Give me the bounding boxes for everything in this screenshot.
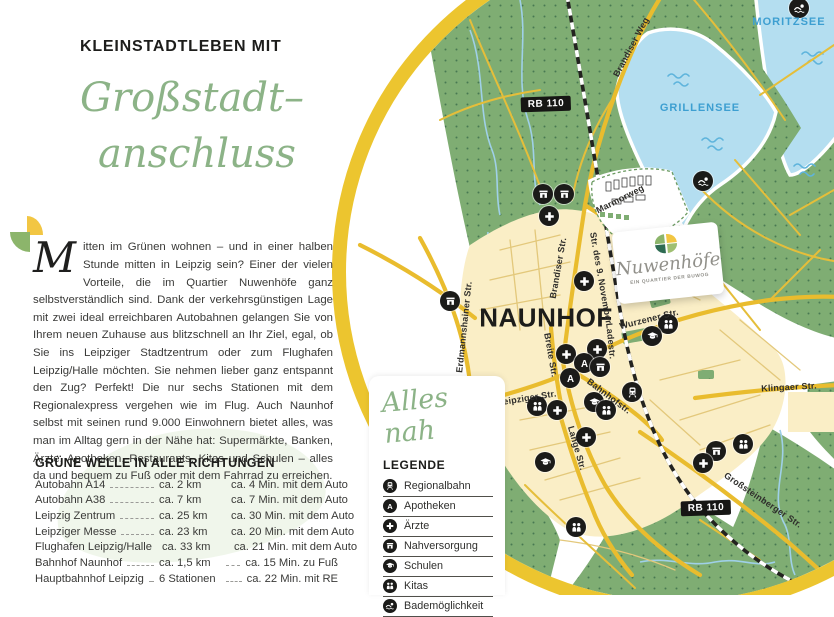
leaf-decoration-green-icon <box>10 232 30 252</box>
graduation-cap-icon <box>383 559 397 573</box>
map-legend: Alles nah LEGENDE RegionalbahnAApotheken… <box>369 376 505 595</box>
distance-value: ca. 25 km <box>159 510 221 522</box>
destination-name: Bahnhof Naunhof <box>35 557 122 569</box>
legend-item: AApotheken <box>383 497 493 517</box>
destination-name: Hauptbahnhof Leipzig <box>35 573 144 585</box>
legend-item: Schulen <box>383 557 493 577</box>
legend-heading: LEGENDE <box>383 458 493 472</box>
distance-table: Autobahn A14ca. 2 kmca. 4 Min. mit dem A… <box>35 475 338 585</box>
distance-table-heading: GRÜNE WELLE IN ALLE RICHTUNGEN <box>35 456 275 470</box>
distance-table-row: Leipziger Messeca. 23 kmca. 20 Min. mit … <box>35 522 338 538</box>
destination-name: Leipziger Messe <box>35 526 116 538</box>
dropcap: M <box>33 241 76 275</box>
travel-time-value: ca. 4 Min. mit dem Auto <box>231 479 348 491</box>
legend-script-title: Alles nah <box>380 379 495 450</box>
travel-time-value: ca. 20 Min. mit dem Auto <box>231 526 354 538</box>
train-icon <box>383 479 397 493</box>
destination-name: Autobahn A38 <box>35 494 105 506</box>
legend-item-label: Kitas <box>404 580 428 592</box>
legend-item-label: Bademöglichkeit <box>404 600 483 612</box>
legend-item: Nahversorgung <box>383 537 493 557</box>
headline-line1: Großstadt– <box>80 70 304 126</box>
distance-value: ca. 23 km <box>159 526 221 538</box>
distance-value: ca. 2 km <box>159 479 221 491</box>
headline-script: Großstadt– anschluss <box>80 70 304 182</box>
legend-item: Ärzte <box>383 517 493 537</box>
distance-value: 6 Stationen <box>159 573 221 585</box>
travel-time-value: ca. 7 Min. mit dem Auto <box>231 494 348 506</box>
svg-text:A: A <box>387 502 393 511</box>
legend-item: Kitas <box>383 577 493 597</box>
nuwenhoefe-leaf-logo-icon <box>654 233 678 254</box>
legend-item-list: RegionalbahnAApothekenÄrzteNahversorgung… <box>383 477 493 617</box>
intro-text: itten im Grünen wohnen – und in einer ha… <box>33 241 333 482</box>
travel-time-value: ca. 15 Min. zu Fuß <box>245 557 338 569</box>
travel-time-value: ca. 21 Min. mit dem Auto <box>234 541 357 553</box>
legend-item-label: Ärzte <box>404 520 429 532</box>
destination-name: Autobahn A14 <box>35 479 105 491</box>
travel-time-value: ca. 22 Min. mit RE <box>247 573 338 585</box>
destination-name: Leipzig Zentrum <box>35 510 115 522</box>
distance-value: ca. 7 km <box>159 494 221 506</box>
distance-value: ca. 33 km <box>162 541 224 553</box>
editorial-panel: KLEINSTADTLEBEN MIT Großstadt– anschluss… <box>0 0 360 595</box>
legend-item: Regionalbahn <box>383 477 493 497</box>
legend-item-label: Schulen <box>404 560 443 572</box>
distance-table-row: Hauptbahnhof Leipzig6 Stationenca. 22 Mi… <box>35 569 338 585</box>
distance-table-row: Bahnhof Naunhofca. 1,5 kmca. 15 Min. zu … <box>35 553 338 569</box>
legend-item-label: Apotheken <box>404 500 456 512</box>
destination-name: Flughafen Leipzig/Halle <box>35 541 152 553</box>
intro-paragraph: Mitten im Grünen wohnen – und in einer h… <box>33 239 333 485</box>
legend-item-label: Nahversorgung <box>404 540 478 552</box>
distance-table-row: Flughafen Leipzig/Halleca. 33 kmca. 21 M… <box>35 538 338 554</box>
headline-line2: anschluss <box>98 126 304 182</box>
swimmer-icon <box>383 599 397 613</box>
legend-item: Bademöglichkeit <box>383 597 493 617</box>
distance-table-row: Autobahn A38ca. 7 kmca. 7 Min. mit dem A… <box>35 491 338 507</box>
nuwenhoefe-logo-card: Nuwenhöfe EIN QUARTIER DER BUWOG <box>612 222 725 305</box>
eyebrow-title: KLEINSTADTLEBEN MIT <box>80 38 282 56</box>
travel-time-value: ca. 30 Min. mit dem Auto <box>231 510 354 522</box>
brochure-page: AANAUNHOFMORITZSEEGRILLENSEEBrandiser We… <box>0 0 834 595</box>
legend-item-label: Regionalbahn <box>404 480 471 492</box>
children-icon <box>383 579 397 593</box>
shop-icon <box>383 539 397 553</box>
distance-value: ca. 1,5 km <box>159 557 221 569</box>
pharmacy-a-icon: A <box>383 499 397 513</box>
distance-table-row: Leipzig Zentrumca. 25 kmca. 30 Min. mit … <box>35 506 338 522</box>
distance-table-row: Autobahn A14ca. 2 kmca. 4 Min. mit dem A… <box>35 475 338 491</box>
medical-cross-icon <box>383 519 397 533</box>
